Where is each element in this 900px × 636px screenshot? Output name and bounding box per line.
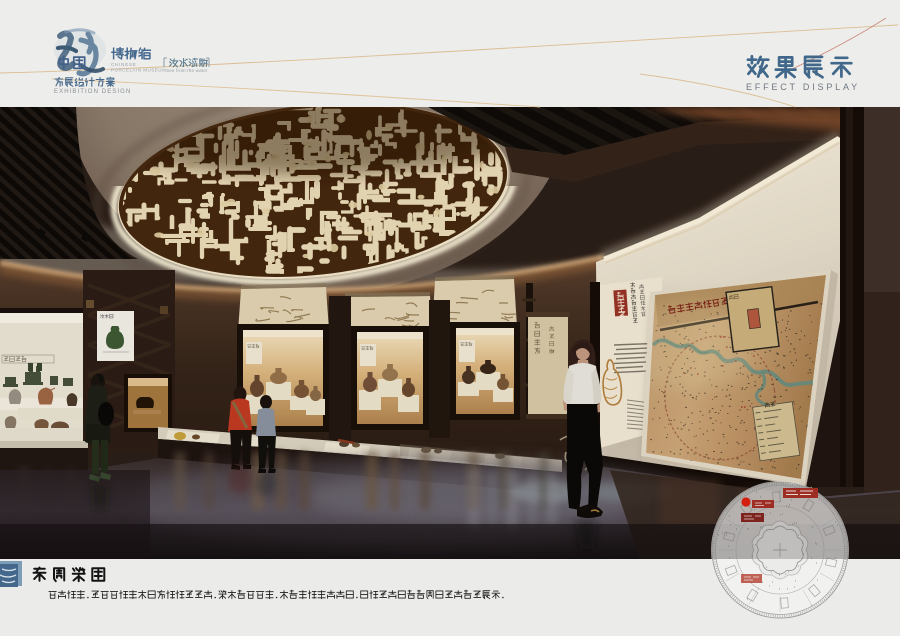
svg-text:EFFECT DISPLAY: EFFECT DISPLAY (746, 82, 860, 92)
svg-text:CHINESE: CHINESE (111, 62, 137, 67)
svg-text:EXHIBITION DESIGN: EXHIBITION DESIGN (54, 89, 131, 95)
svg-text:See from the water: See from the water (166, 68, 208, 73)
svg-text:PORCELAIN MUSEUM: PORCELAIN MUSEUM (111, 68, 166, 73)
